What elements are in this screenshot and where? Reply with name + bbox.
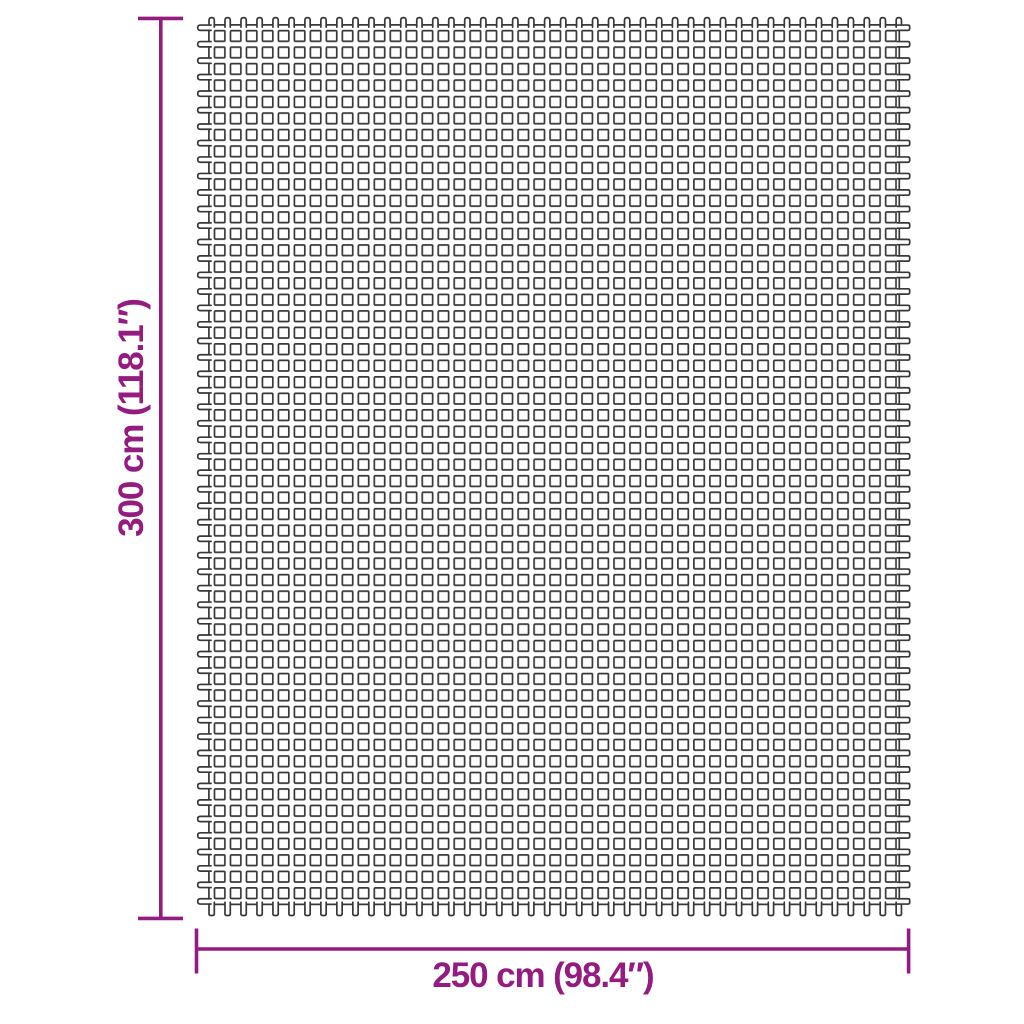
- svg-text:300 cm (118.1″): 300 cm (118.1″): [112, 299, 151, 537]
- svg-text:250 cm (98.4″): 250 cm (98.4″): [432, 956, 653, 995]
